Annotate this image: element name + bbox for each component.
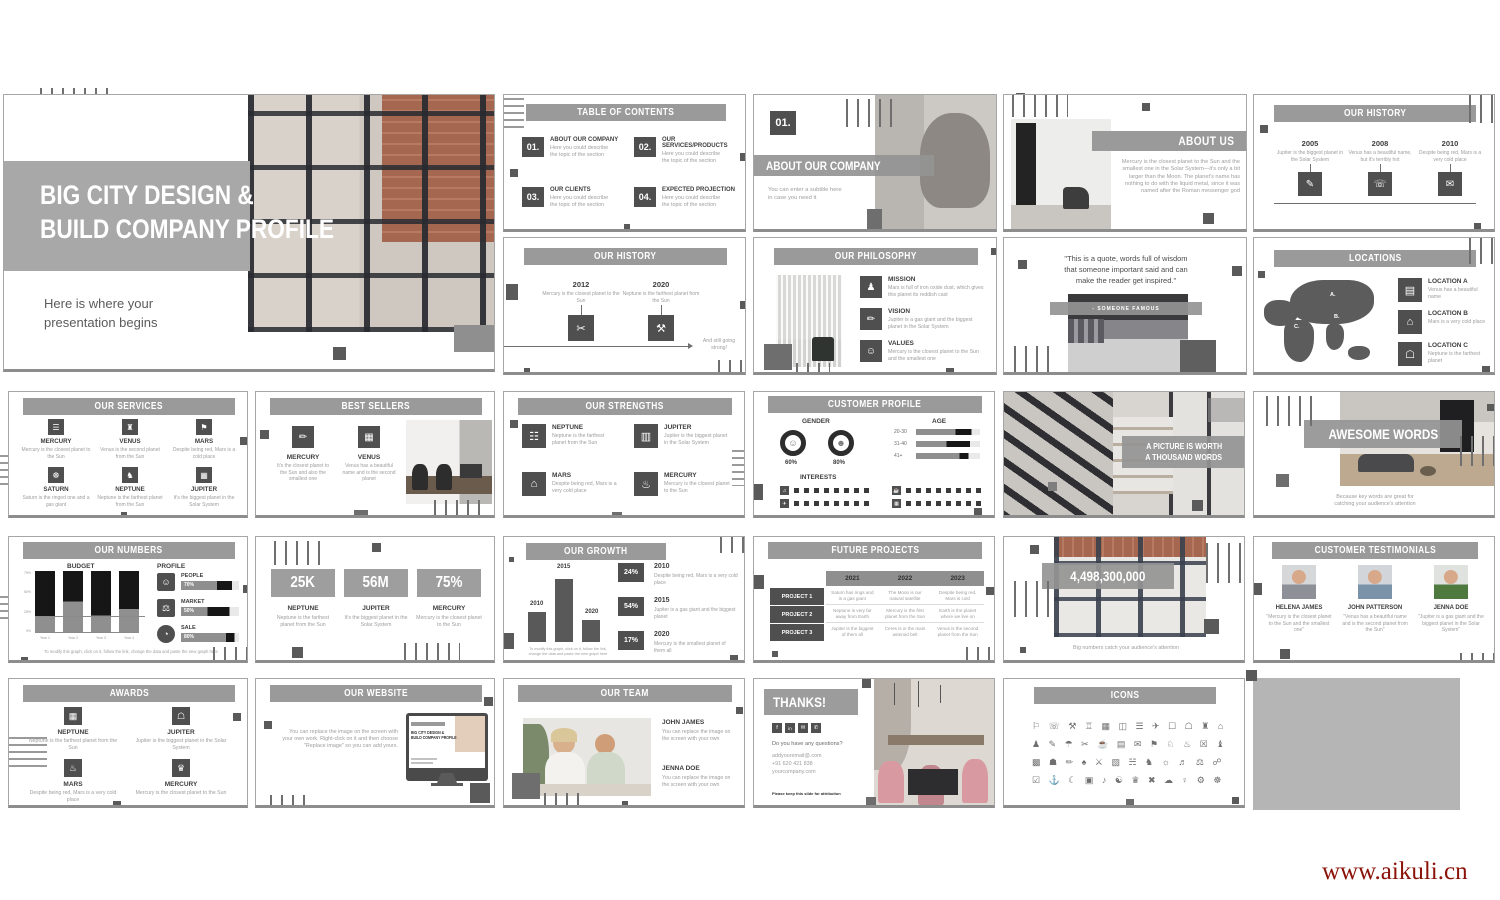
timeline-line [504,346,690,347]
testimonial-photo [1358,565,1392,599]
map-marker-a: A. [1330,292,1336,298]
growth-item-year: 2015 [654,597,670,604]
profile-item-value: 80% [184,634,194,640]
best-seller-desc: It's the closest planet to the Sun and a… [274,463,332,483]
toc-item-desc: Here you could describe the topic of the… [550,195,612,209]
interest-dots [794,488,869,493]
slide-big-numbers: 25K NEPTUNE Neptune is the farthest plan… [255,536,495,663]
growth-pct-box: 24% [618,563,644,582]
deco-square [1203,213,1214,224]
interest-icon: ♫ [780,486,789,495]
member-name: JOHN JAMES [662,719,704,726]
slide-heading: BEST SELLERS [270,398,482,415]
deco-lines [1266,396,1312,426]
deco-square [260,430,269,439]
milestone-icon: ✎ [1298,172,1322,196]
best-seller-icon: ▦ [358,426,380,448]
deco-square [1192,500,1203,511]
service-icon: ☸ [48,467,64,483]
timeline-tail-note: And still going strong! [696,338,742,352]
slide-team: OUR TEAM JOHN JAMES You can replace the … [503,678,745,808]
map-marker-c: C. [1294,324,1300,330]
deco-square [113,801,121,808]
deco-square [333,347,346,360]
deco-square [524,368,530,374]
milestone-year: 2010 [1442,139,1459,148]
deco-square [974,508,982,516]
testimonial-photo [1434,565,1468,599]
location-icon: ⌂ [1398,310,1422,334]
growth-pct-box: 17% [618,631,644,650]
interest-icon: ✈ [780,499,789,508]
section-subtitle: You can enter a subtitle herein case you… [768,187,842,202]
slide-heading: CUSTOMER PROFILE [768,396,982,413]
deco-square [1180,340,1216,375]
deco-lines [846,99,892,127]
member-desc: You can replace the image on the screen … [662,775,734,789]
award-label: MARS [63,781,82,788]
slide-best-sellers: BEST SELLERS ✏ MERCURY It's the closest … [255,391,495,518]
deco-lines [732,450,745,486]
deco-lines [1460,436,1495,466]
service-desc: Despite being red, Mars is a cold place [169,447,239,460]
table-row: Saturn has rings and is a gas giant The … [826,588,984,605]
slide-growth: OUR GROWTH 2010 2015 2020 To modify this… [503,536,745,663]
strength-desc: Despite being red, Mars is a very cold p… [552,481,618,495]
big-number-desc: Mercury is the closest planet to the Sun [416,615,482,629]
slide-heading: OUR WEBSITE [270,685,482,702]
social-icon: f [772,723,782,733]
service-desc: It's the biggest planet in the Solar Sys… [169,495,239,508]
team-photo [523,718,651,796]
toc-number: 03. [522,187,544,207]
award-label: MERCURY [165,781,198,788]
location-desc: Venus has a beautiful name [1428,287,1486,301]
slide-heading: CUSTOMER TESTIMONIALS [1272,542,1478,559]
gender-donut-1: ☺ [780,430,806,456]
icon-grid-row: ☑ ⚓ ☾ ▣ ♪ ☯ ♛ ✖ ☁ ♀ ⚙ ☸ [1032,775,1220,786]
chart-note: To modify this graph, click on it, follo… [524,647,612,657]
service-label: JUPITER [191,486,217,493]
milestone-desc: Neptune is the farthest planet from the … [622,291,700,304]
toc-item-label: EXPECTED PROJECTION [662,187,735,193]
award-desc: Mercury is the closest planet to the Sun [136,790,227,797]
strength-icon: ⌂ [522,472,546,496]
slide-quote: "This is a quote, words full of wisdomth… [1003,237,1247,375]
service-icon: ▦ [196,467,212,483]
best-seller-desc: Venus has a beautiful name and is the se… [340,463,398,483]
awesome-caption: Because key words are great forcatching … [1290,494,1460,508]
deco-square [1018,260,1027,269]
slide-testimonials: CUSTOMER TESTIMONIALS HELENA JAMES "Merc… [1253,536,1495,663]
project-row-label: PROJECT 3 [770,624,824,641]
service-label: NEPTUNE [115,486,145,493]
icon-grid-row: ♟ ✎ ☂ ✂ ☕ ▤ ✉ ⚑ ♘ ♨ ☒ ♝ [1032,739,1220,750]
slide-about-us: ABOUT US Mercury is the closest planet t… [1003,94,1247,232]
slide-heading: OUR PHILOSOPHY [774,248,978,265]
deco-square [509,557,514,562]
testimonial-quote: "Mercury is the closest planet to the Su… [1266,614,1332,634]
toc-number: 02. [634,137,656,157]
thanks-question: Do you have any questions? [772,741,843,748]
slide-locations: LOCATIONS A. B. C. ▤ LOCATION A Venus ha… [1253,237,1495,375]
service-label: SATURN [43,486,68,493]
icon-grid-row: ⚐ ☏ ⚒ ♖ ▦ ◫ ☰ ✈ ☐ ☖ ♜ ⌂ [1032,721,1220,732]
deco-lines [720,537,745,553]
deco-lines [9,737,47,767]
big-number-desc: Neptune is the farthest planet from the … [270,615,336,629]
milestone-year: 2020 [653,280,670,289]
gender-label: GENDER [802,418,830,425]
slide-services: OUR SERVICES ☰ MERCURY Mercury is the cl… [8,391,248,518]
deco-square [1482,366,1490,374]
big-number-box: 75% [417,569,481,597]
growth-year: 2015 [557,564,570,570]
profile-icon: ⚖ [157,599,175,617]
deco-square [772,651,778,657]
member-name: JENNA DOE [662,765,700,772]
location-label: LOCATION B [1428,310,1486,317]
deco-square [1246,670,1257,681]
picture-title-band: A PICTURE IS WORTHA THOUSAND WORDS [1122,436,1245,468]
big-number-box: 25K [271,569,335,597]
location-desc: Neptune is the farthest planet [1428,351,1486,365]
growth-item-year: 2020 [654,631,670,638]
testimonial-name: JENNA DOE [1434,605,1469,611]
age-bar [916,453,980,459]
deco-square [764,344,792,370]
strength-icon: ☷ [522,424,546,448]
slide-future-projects: FUTURE PROJECTS 2021 2022 2023 PROJECT 1… [753,536,995,663]
deco-lines [1206,543,1242,583]
deco-square [21,657,28,663]
award-icon: ☖ [172,707,190,725]
thanks-phone: +91 620 421 838 [772,761,813,768]
slide-heading: AWARDS [23,685,235,702]
deco-square [740,301,746,309]
gray-placeholder-block [1253,678,1460,810]
growth-chart [528,579,604,642]
age-bar [916,429,980,435]
service-icon: ♞ [122,467,138,483]
deco-square [121,512,127,518]
milestone-icon: ⚒ [648,315,674,341]
testimonial-name: JOHN PATTERSON [1348,605,1402,611]
deco-lines [796,363,830,373]
thanks-email: addyouremail@.com [772,753,822,760]
award-icon: ♨ [64,759,82,777]
location-label: LOCATION A [1428,278,1486,285]
deco-square [372,543,381,552]
gender-value: 60% [785,460,797,466]
best-seller-label: MERCURY [287,454,320,461]
slide-section-01: 01. ABOUT OUR COMPANY You can enter a su… [753,94,997,232]
age-group: 20-30 [894,429,907,436]
deco-square [612,512,622,518]
deco-lines [274,541,320,565]
best-sellers-photo [406,420,492,504]
mini-screen-title: BIG CITY DESIGN &BUILD COMPANY PROFILE [411,730,465,741]
deco-lines [1014,581,1050,617]
deco-square [243,585,248,593]
profile-item-value: 70% [184,582,194,588]
best-seller-label: VENUS [358,454,380,461]
table-year-header: 2021 2022 2023 [826,571,984,586]
deco-square [867,209,882,232]
strength-icon: ♨ [634,472,658,496]
big-number-label: MERCURY [433,605,466,612]
toc-number: 01. [522,137,544,157]
big-number-label: NEPTUNE [287,605,318,612]
big-number-box: 56M [344,569,408,597]
deco-square [740,153,746,161]
award-label: JUPITER [167,729,194,736]
deco-square [240,437,248,445]
philosophy-desc: Mars is full of iron oxide dust, which g… [888,285,984,299]
deco-lines [270,795,310,808]
growth-item-desc: Despite being red, Mars is a very cold p… [654,573,738,586]
slide-philosophy: OUR PHILOSOPHY ♟ MISSION Mars is full of… [753,237,997,375]
big-number-desc: It's the biggest planet in the Solar Sys… [343,615,409,629]
deco-square [986,587,994,595]
milestone-icon: ☏ [1368,172,1392,196]
big-number-label: JUPITER [362,605,389,612]
table-row: Jupiter is the biggest of them all Ceres… [826,624,984,641]
testimonial-photo [1282,565,1316,599]
milestone-year: 2012 [573,280,590,289]
world-map: A. B. C. [1262,276,1378,372]
thanks-web: yourcompany.com [772,769,816,776]
about-body: Mercury is the closest planet to the Sun… [1120,159,1240,195]
deco-square [470,783,490,803]
strength-label: JUPITER [664,424,730,431]
slide-awards: AWARDS ▦ NEPTUNE Neptune is the farthest… [8,678,248,808]
deco-band [1208,398,1245,422]
slide-customer-profile: CUSTOMER PROFILE GENDER ☺ ☻ 60% 80% AGE … [753,391,995,518]
deco-square [504,633,514,649]
toc-item-desc: Here you could describe the topic of the… [662,151,724,165]
deco-square [1030,545,1039,554]
social-icon: in [785,723,795,733]
presentation-subtitle: Here is where yourpresentation begins [44,295,157,333]
map-marker-b: B. [1334,314,1340,320]
attribution-note: Please keep this slide for attribution [772,791,841,796]
presentation-title: BIG CITY DESIGN & BUILD COMPANY PROFILE [40,179,390,247]
slide-title: BIG CITY DESIGN & BUILD COMPANY PROFILE … [3,94,495,372]
deco-lines [718,360,746,374]
gender-donut-2: ☻ [828,430,854,456]
deco-square [1260,125,1268,133]
slide-history-2005: OUR HISTORY 2005 Jupiter is the biggest … [1253,94,1495,232]
deco-square [736,707,743,714]
strength-desc: Mercury is the closest planet to the Sun [664,481,730,495]
slide-icons: ICONS ⚐ ☏ ⚒ ♖ ▦ ◫ ☰ ✈ ☐ ☖ ♜ ⌂ ♟ ✎ ☂ ✂ ☕ … [1003,678,1245,808]
quote-text: "This is a quote, words full of wisdomth… [1034,254,1218,287]
deco-square [1232,797,1239,804]
budget-chart [35,571,139,633]
deco-square [512,773,540,799]
bignum-caption: Big numbers catch your audience's attent… [1044,645,1208,652]
deco-square [1276,474,1289,487]
deco-square [624,224,630,230]
awesome-title-band: AWESOME WORDS [1304,420,1462,448]
deco-square [730,655,738,663]
philosophy-label: VALUES [888,340,984,347]
deco-square [510,420,518,428]
philosophy-desc: Mercury is the closest planet to the Sun… [888,349,984,363]
deco-square [866,797,876,808]
toc-item-label: ABOUT OUR COMPANY [550,137,618,143]
toc-item-label: OUR CLIENTS [550,187,612,193]
deco-square [1232,266,1242,276]
service-icon: ⚑ [196,419,212,435]
slide-toc: TABLE OF CONTENTS 01. ABOUT OUR COMPANY … [503,94,746,232]
timeline-arrowhead [688,343,693,349]
budget-y-ticks: 75%50%25%0% [21,571,31,633]
chart-note: To modify this graph, click on it, follo… [33,649,229,654]
deco-square [1254,583,1262,595]
growth-item-year: 2010 [654,563,670,570]
gender-value: 80% [833,460,845,466]
deco-square [292,647,303,658]
deco-lines [404,643,460,663]
timeline-line [1274,203,1476,204]
deco-square [1142,103,1150,111]
strength-label: MERCURY [664,472,730,479]
slide-heading: ABOUT US [1092,131,1247,151]
service-label: MARS [195,438,213,445]
location-icon: ▤ [1398,278,1422,302]
deco-square [1487,404,1494,411]
milestone-desc: Venus has a beautiful name, but it's ter… [1346,150,1414,163]
project-row-label: PROJECT 2 [770,606,824,623]
deco-square [1280,649,1290,659]
interest-icon: ▦ [892,499,901,508]
deco-lines [504,98,524,130]
slide-heading: ICONS [1034,687,1216,704]
philosophy-icon: ☺ [860,340,882,362]
deco-square [1126,799,1134,808]
deco-square [754,484,763,500]
member-desc: You can replace the image on the screen … [662,729,734,743]
deco-square [484,697,493,706]
table-row: Neptune is very far away from Earth Merc… [826,606,984,623]
service-desc: Mercury is the closest planet to the Sun [21,447,91,460]
interest-icon: ☕ [892,486,901,495]
strength-label: NEPTUNE [552,424,618,431]
social-icon: ✉ [798,723,808,733]
milestone-desc: Despite being red, Mars is a very cold p… [1416,150,1484,163]
slide-numbers: OUR NUMBERS BUDGET 75%50%25%0% Year 1Yea… [8,536,248,663]
social-icon: ✆ [811,723,821,733]
watermark: www.aikuli.cn [1322,858,1468,886]
icon-grid-row: ▩ ☗ ✏ ♠ ⚔ ▧ ☵ ♞ ☼ ♬ ⚖ ☍ [1032,757,1220,768]
testimonial-name: HELENA JAMES [1276,605,1323,611]
location-icon: ☖ [1398,342,1422,366]
slide-website: OUR WEBSITE You can replace the image on… [255,678,495,808]
milestone-year: 2005 [1302,139,1319,148]
deco-square [506,284,518,300]
deco-square [862,679,871,688]
monitor-mockup: BIG CITY DESIGN &BUILD COMPANY PROFILE [406,713,488,781]
service-label: VENUS [119,438,140,445]
project-row-label: PROJECT 1 [770,588,824,605]
location-label: LOCATION C [1428,342,1486,349]
award-desc: Despite being red, Mars is a very cold p… [27,790,119,804]
profile-label: PROFILE [157,563,185,570]
deco-square [991,248,997,255]
interest-dots [906,501,981,506]
milestone-icon: ✉ [1438,172,1462,196]
testimonial-quote: "Jupiter is a gas giant and the biggest … [1418,614,1484,634]
testimonial-quote: "Venus has a beautiful name and is the s… [1342,614,1408,634]
slide-heading: OUR SERVICES [23,398,235,415]
deco-lines [1012,95,1068,117]
website-body: You can replace the image on the screen … [282,729,398,750]
deco-square [754,575,764,589]
deco-lines [434,500,484,516]
award-label: NEPTUNE [57,729,88,736]
toc-item-label: OUR SERVICES/PRODUCTS [662,137,738,149]
award-icon: ♛ [172,759,190,777]
budget-x-ticks: Year 1Year 2Year 3Year 4 [35,636,139,640]
award-desc: Jupiter is the biggest planet in the Sol… [135,738,227,752]
deco-square [233,713,241,721]
deco-square [1474,223,1481,230]
slide-heading: LOCATIONS [1274,250,1476,267]
deco-lines [1460,653,1495,663]
philosophy-label: MISSION [888,276,984,283]
service-label: MERCURY [40,438,71,445]
age-label: AGE [932,418,946,425]
deco-lines [1469,238,1495,264]
service-desc: Neptune is the farthest planet from the … [95,495,165,508]
slide-awesome-words: AWESOME WORDS Because key words are grea… [1253,391,1495,518]
age-bar [916,441,980,447]
profile-item-label: SALE [181,625,196,631]
quote-attribution-band: - SOMEONE FAMOUS [1050,302,1202,315]
philosophy-label: VISION [888,308,984,315]
slide-heading: FUTURE PROJECTS [768,542,982,559]
service-desc: Saturn is the ringed one and a gas giant [21,495,91,508]
section-number: 01. [770,111,796,135]
philosophy-icon: ♟ [860,276,882,298]
deco-square [264,721,272,729]
slide-heading: OUR TEAM [518,685,732,702]
deco-square [354,510,368,518]
deco-lines [1469,95,1495,123]
milestone-year: 2008 [1372,139,1389,148]
deco-square [1020,647,1026,653]
deco-lines [1014,346,1050,375]
milestone-icon: ✂ [568,315,594,341]
slide-heading: OUR HISTORY [1274,105,1476,122]
strength-desc: Neptune is the farthest planet from the … [552,433,618,447]
milestone-desc: Mercury is the closest planet to the Sun [542,291,620,304]
profile-item-label: PEOPLE [181,573,203,579]
growth-item-desc: Jupiter is a gas giant and the biggest p… [654,607,738,620]
slide-big-number: 4,498,300,000 Big numbers catch your aud… [1003,536,1245,663]
service-desc: Venus is the second planet from the Sun [95,447,165,460]
interest-dots [794,501,869,506]
bignum-band: 4,498,300,000 [1042,563,1174,589]
budget-label: BUDGET [67,563,94,570]
growth-pct-box: 54% [618,597,644,616]
slide-heading: OUR NUMBERS [23,542,235,559]
deco-square [622,801,628,807]
profile-icon: ◔ [157,625,175,643]
service-icon: ♜ [122,419,138,435]
